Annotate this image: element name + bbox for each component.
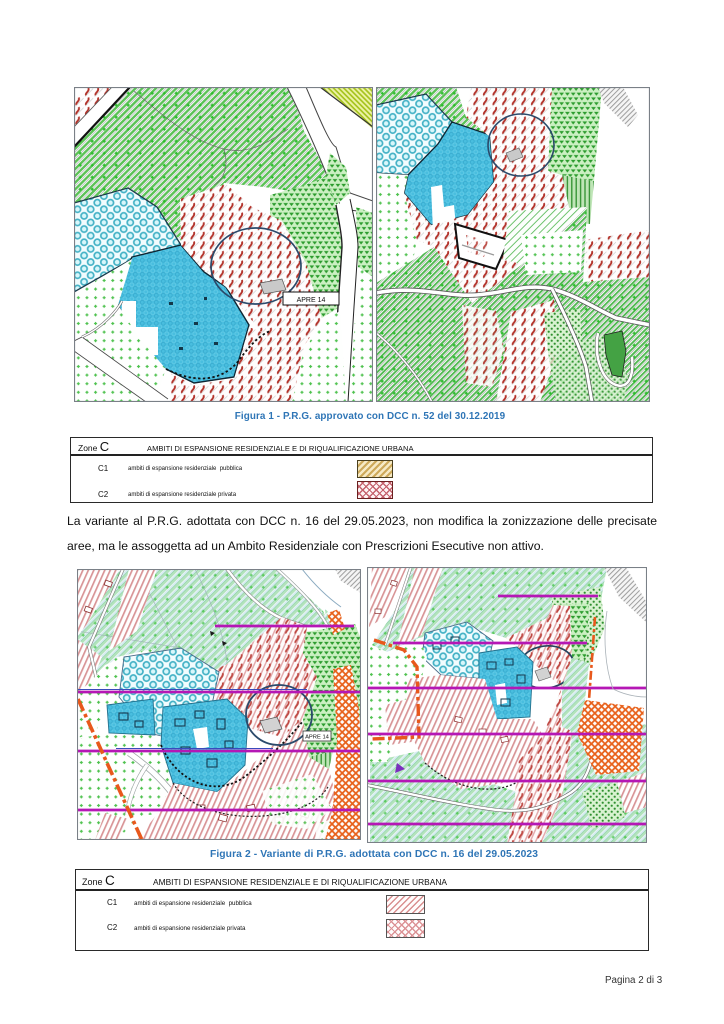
svg-text:APRE 14: APRE 14 (297, 297, 326, 304)
svg-text:APRE 14: APRE 14 (305, 735, 330, 741)
